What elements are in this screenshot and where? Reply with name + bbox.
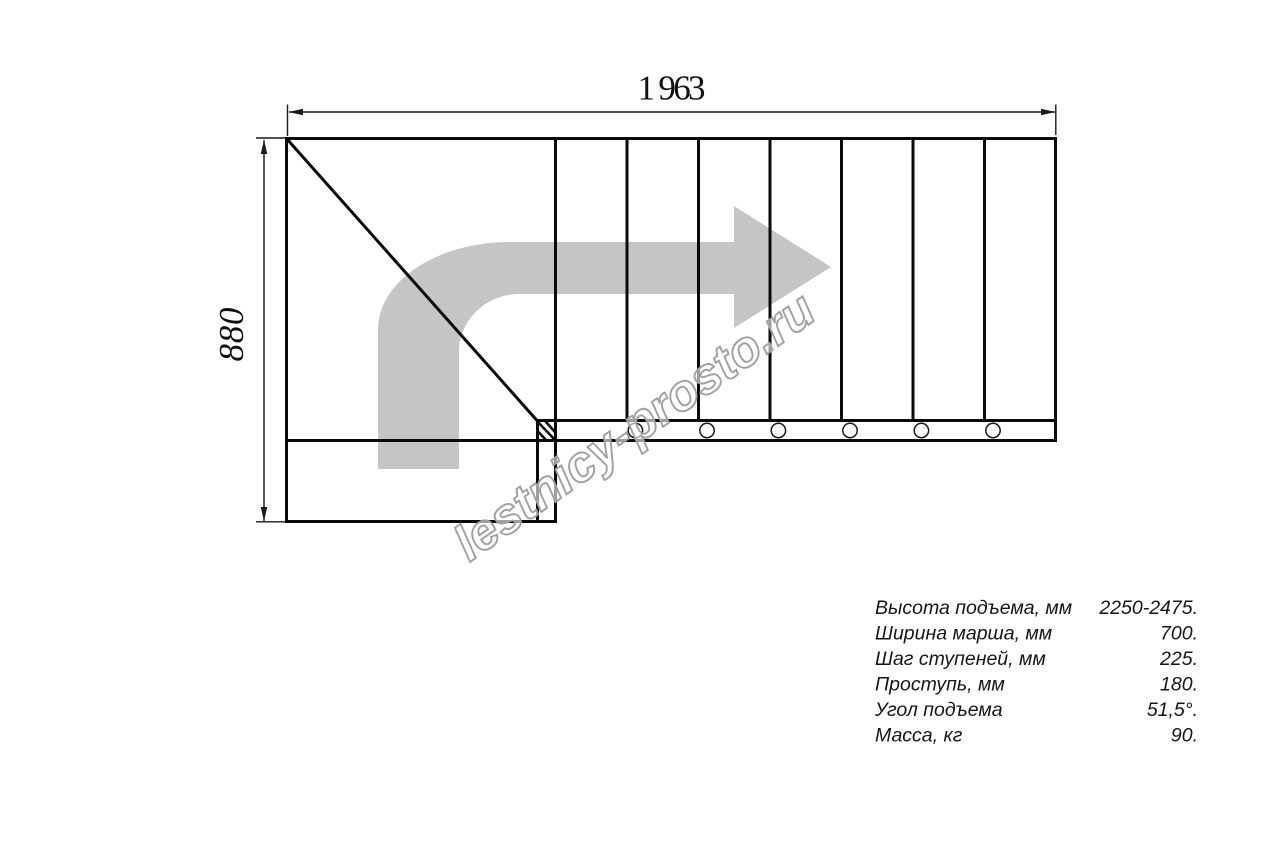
svg-text:Шаг ступеней, мм: Шаг ступеней, мм <box>875 648 1046 670</box>
svg-text:700.: 700. <box>1160 623 1198 645</box>
svg-text:90.: 90. <box>1171 725 1198 747</box>
svg-text:1 963: 1 963 <box>638 69 706 108</box>
svg-text:Масса, кг: Масса, кг <box>875 725 963 747</box>
svg-text:Проступь, мм: Проступь, мм <box>875 674 1005 696</box>
svg-text:51,5°.: 51,5°. <box>1147 699 1198 721</box>
svg-text:180.: 180. <box>1160 674 1198 696</box>
svg-text:225.: 225. <box>1159 648 1198 670</box>
svg-text:Ширина марша, мм: Ширина марша, мм <box>875 623 1052 645</box>
svg-text:880: 880 <box>212 307 251 362</box>
svg-text:Высота подъема, мм: Высота подъема, мм <box>875 597 1072 619</box>
svg-text:2250-2475.: 2250-2475. <box>1098 597 1198 619</box>
svg-text:Угол подъема: Угол подъема <box>874 699 1003 721</box>
